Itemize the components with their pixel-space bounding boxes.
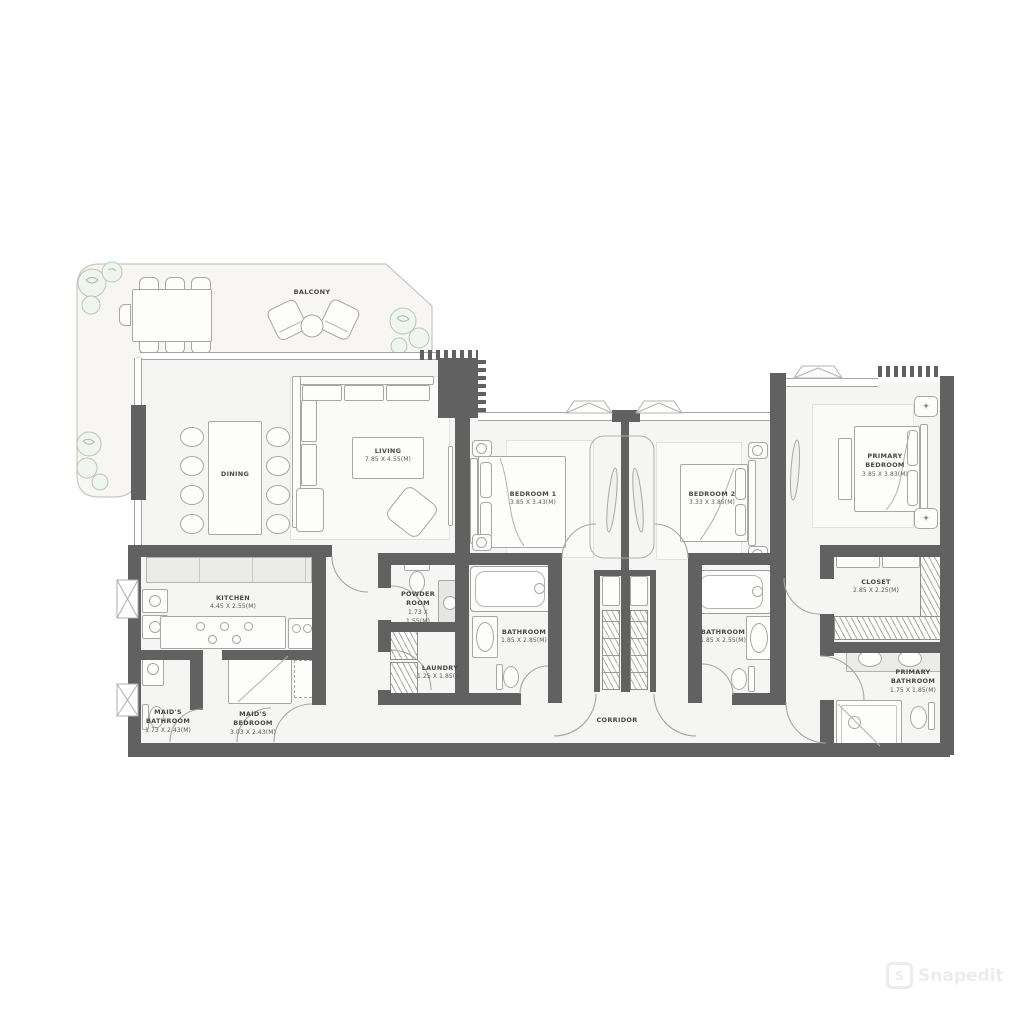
- room-dims: 1.73 X 2.43(M): [143, 727, 193, 736]
- room-dims: 3.85 X 3.83(M): [858, 471, 912, 480]
- bathroom2-label: BATHROOM 1.85 X 2.55(M): [699, 628, 747, 646]
- room-dims: 1.25 X 1.85(M): [414, 673, 466, 682]
- closet-label: CLOSET 2.85 X 2.25(M): [850, 578, 902, 596]
- door-arc: [332, 556, 368, 592]
- room-dims: 4.45 X 2.55(M): [205, 603, 261, 612]
- door-arc: [702, 664, 733, 695]
- room-name: BALCONY: [282, 288, 342, 297]
- room-name: BATHROOM: [699, 628, 747, 637]
- room-dims: 3.33 X 3.85(M): [682, 499, 742, 508]
- room-name: BEDROOM 2: [682, 490, 742, 499]
- floor-plan: ✦ ✦: [0, 0, 1024, 1024]
- living-label: LIVING 7.85 X 4.55(M): [354, 447, 422, 465]
- maids-bedroom-label: MAID'S BEDROOM 3.03 X 2.43(M): [221, 710, 285, 738]
- room-name: BATHROOM: [500, 628, 548, 637]
- room-name: KITCHEN: [205, 594, 261, 603]
- watermark-icon: S: [886, 962, 913, 989]
- bedroom-curtain-outline: [590, 436, 654, 558]
- room-name: MAID'S BATHROOM: [143, 708, 193, 727]
- room-dims: 1.73 X 1.55(M): [400, 609, 436, 626]
- room-name: CLOSET: [850, 578, 902, 587]
- room-name: CORRIDOR: [585, 716, 649, 725]
- door-arc: [520, 666, 548, 694]
- door-arc: [654, 524, 688, 558]
- room-dims: 1.85 X 2.55(M): [699, 637, 747, 646]
- primary-bedroom-label: PRIMARY BEDROOM 3.85 X 3.83(M): [858, 452, 912, 480]
- room-name: PRIMARY BATHROOM: [890, 668, 936, 687]
- bedroom1-label: BEDROOM 1 3.85 X 3.43(M): [503, 490, 563, 508]
- watermark-text: Snapedit: [918, 966, 1004, 986]
- room-dims: 1.85 X 2.85(M): [500, 637, 548, 646]
- bathroom1-label: BATHROOM 1.85 X 2.85(M): [500, 628, 548, 646]
- balcony-label: BALCONY: [282, 288, 342, 297]
- room-dims: 3.03 X 2.43(M): [221, 729, 285, 738]
- marks-layer: [0, 0, 1024, 1024]
- full-length-mirror: [789, 440, 801, 500]
- watermark: S Snapedit: [886, 962, 1004, 989]
- door-arc: [554, 694, 596, 736]
- door-arc: [562, 524, 596, 558]
- room-name: LIVING: [354, 447, 422, 456]
- room-name: POWDER ROOM: [400, 590, 436, 609]
- powder-room-label: POWDER ROOM 1.73 X 1.55(M): [400, 590, 436, 626]
- window-sill: [636, 401, 682, 413]
- room-name: BEDROOM 1: [503, 490, 563, 499]
- room-dims: 7.85 X 4.55(M): [354, 456, 422, 465]
- door-arc: [784, 578, 820, 614]
- laundry-label: LAUNDRY 1.25 X 1.85(M): [414, 664, 466, 682]
- room-name: MAID'S BEDROOM: [221, 710, 285, 729]
- room-dims: 2.85 X 2.25(M): [850, 587, 902, 596]
- door-arc: [820, 656, 864, 700]
- door-arc: [786, 703, 826, 743]
- maid-bed-fold: [238, 656, 288, 702]
- room-name: PRIMARY BEDROOM: [858, 452, 912, 471]
- full-length-mirror: [605, 468, 620, 532]
- room-dims: 3.85 X 3.43(M): [503, 499, 563, 508]
- dining-label: DINING: [209, 470, 261, 479]
- primary-bathroom-label: PRIMARY BATHROOM 1.75 X 1.85(M): [890, 668, 936, 696]
- window-sill: [794, 366, 842, 378]
- kitchen-label: KITCHEN 4.45 X 2.55(M): [205, 594, 261, 612]
- maids-bathroom-label: MAID'S BATHROOM 1.73 X 2.43(M): [143, 708, 193, 736]
- door-arc: [654, 694, 696, 736]
- corridor-label: CORRIDOR: [585, 716, 649, 725]
- window-sill: [566, 401, 612, 413]
- shower-door-line: [838, 704, 880, 746]
- room-name: DINING: [209, 470, 261, 479]
- room-name: LAUNDRY: [414, 664, 466, 673]
- room-dims: 1.75 X 1.85(M): [890, 687, 936, 696]
- bedroom2-label: BEDROOM 2 3.33 X 3.85(M): [682, 490, 742, 508]
- full-length-mirror: [631, 468, 646, 532]
